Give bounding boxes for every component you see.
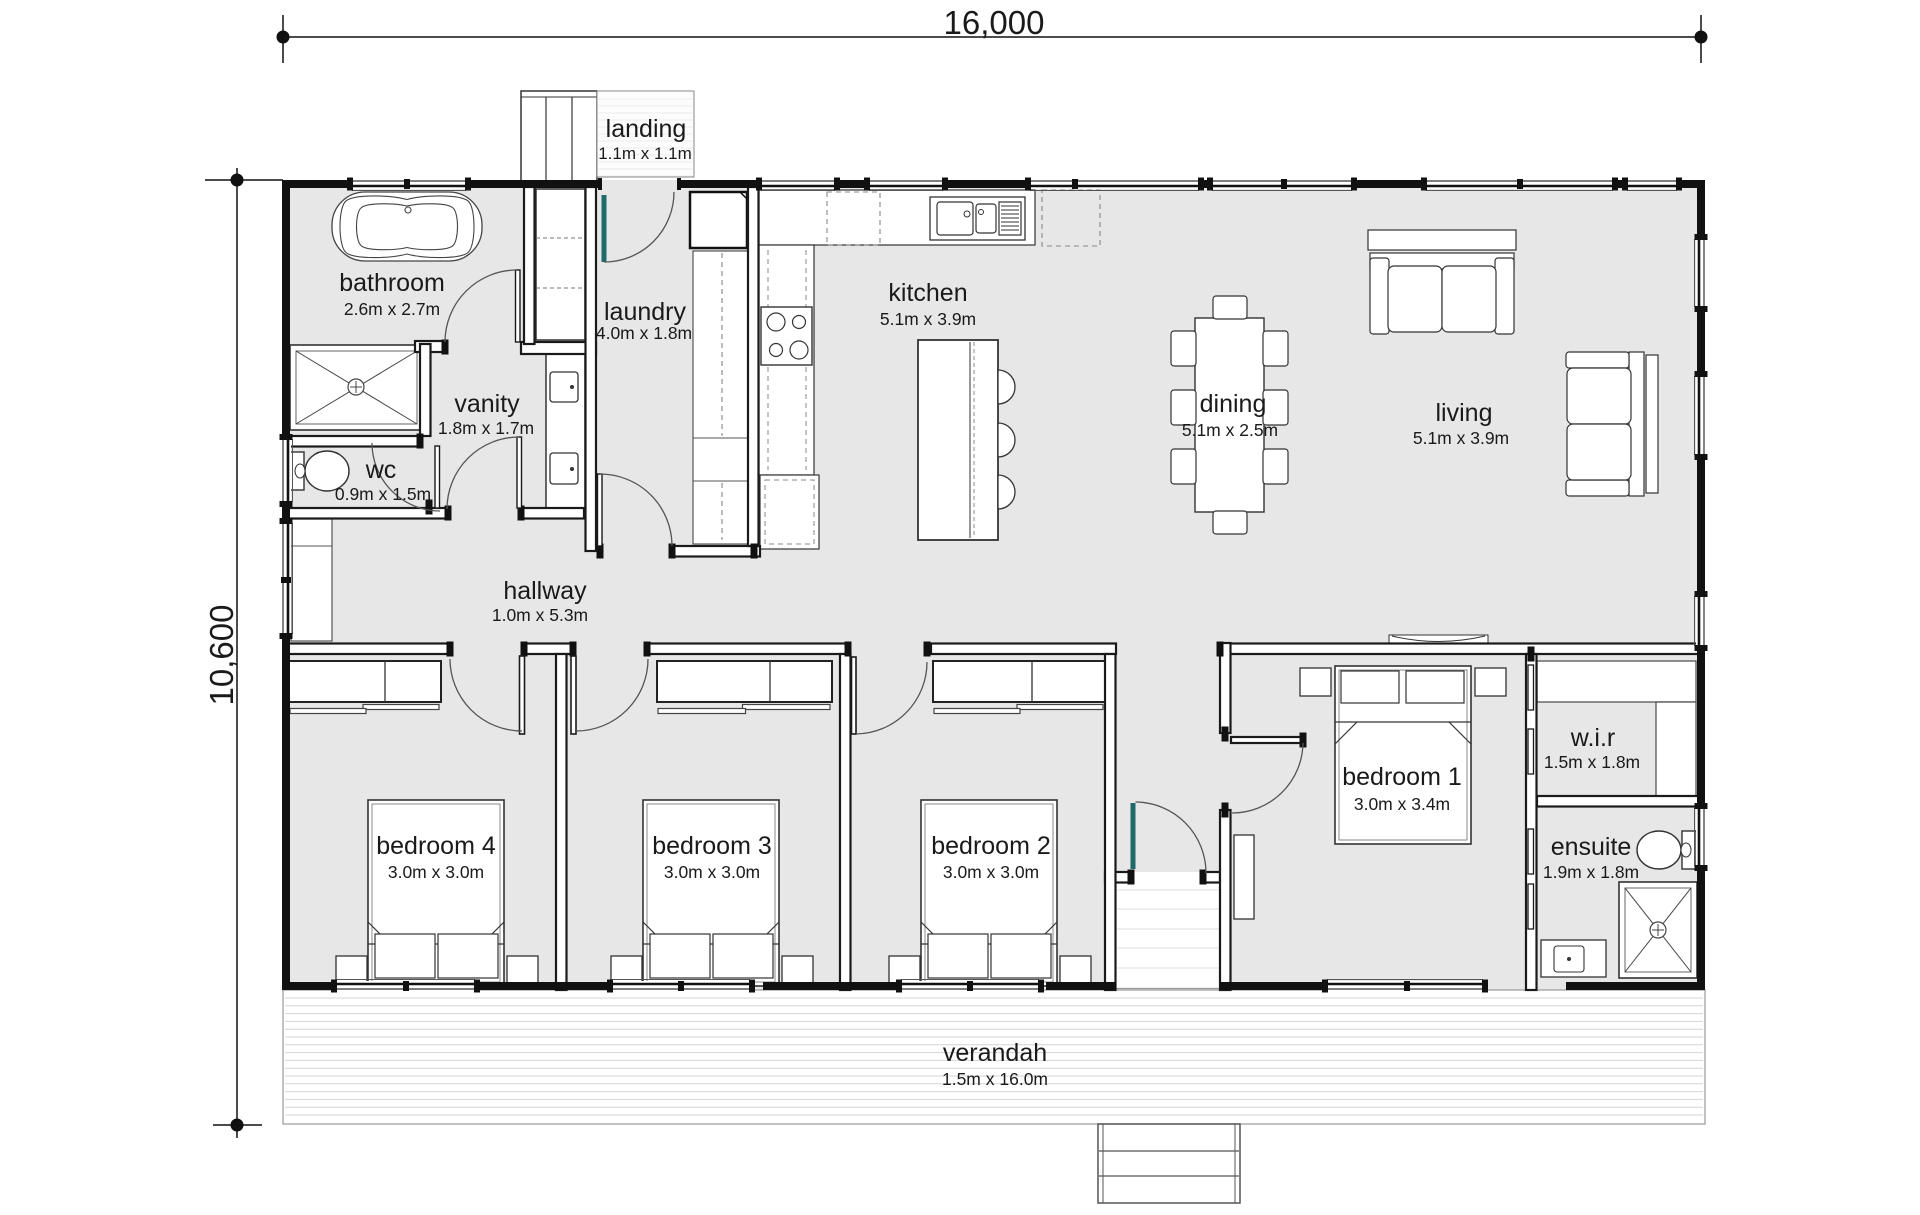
svg-text:ensuite: ensuite	[1551, 833, 1632, 861]
svg-text:laundry: laundry	[604, 298, 686, 326]
svg-text:1.9m x 1.8m: 1.9m x 1.8m	[1543, 862, 1639, 882]
svg-text:1.1m x 1.1m: 1.1m x 1.1m	[598, 144, 692, 163]
svg-text:dining: dining	[1200, 390, 1267, 418]
svg-text:3.0m x 3.0m: 3.0m x 3.0m	[388, 862, 484, 882]
svg-text:3.0m x 3.0m: 3.0m x 3.0m	[664, 862, 760, 882]
svg-text:bedroom 4: bedroom 4	[376, 832, 496, 860]
svg-text:bedroom 3: bedroom 3	[652, 832, 772, 860]
svg-text:w.i.r: w.i.r	[1570, 724, 1615, 752]
svg-text:5.1m x 2.5m: 5.1m x 2.5m	[1182, 420, 1278, 440]
svg-text:1.8m x 1.7m: 1.8m x 1.7m	[438, 418, 534, 438]
svg-text:wc: wc	[365, 456, 397, 484]
svg-text:living: living	[1436, 399, 1493, 427]
svg-text:hallway: hallway	[503, 577, 587, 605]
svg-text:5.1m x 3.9m: 5.1m x 3.9m	[1413, 428, 1509, 448]
svg-text:5.1m x 3.9m: 5.1m x 3.9m	[880, 309, 976, 329]
svg-text:10,600: 10,600	[203, 605, 240, 706]
svg-text:2.6m x 2.7m: 2.6m x 2.7m	[344, 299, 440, 319]
svg-text:1.0m x 5.3m: 1.0m x 5.3m	[492, 605, 588, 625]
svg-text:bedroom 2: bedroom 2	[931, 832, 1051, 860]
svg-text:bedroom 1: bedroom 1	[1342, 763, 1462, 791]
svg-text:3.0m x 3.4m: 3.0m x 3.4m	[1354, 794, 1450, 814]
svg-text:bathroom: bathroom	[339, 269, 445, 297]
svg-text:4.0m x 1.8m: 4.0m x 1.8m	[596, 323, 692, 343]
svg-text:kitchen: kitchen	[888, 279, 967, 307]
svg-text:0.9m x 1.5m: 0.9m x 1.5m	[335, 484, 431, 504]
svg-text:16,000: 16,000	[944, 4, 1045, 41]
svg-text:vanity: vanity	[454, 390, 520, 418]
svg-text:1.5m x 1.8m: 1.5m x 1.8m	[1544, 752, 1640, 772]
svg-text:3.0m x 3.0m: 3.0m x 3.0m	[943, 862, 1039, 882]
svg-text:landing: landing	[606, 115, 687, 143]
svg-text:verandah: verandah	[943, 1039, 1047, 1067]
svg-text:1.5m x 16.0m: 1.5m x 16.0m	[942, 1069, 1048, 1089]
